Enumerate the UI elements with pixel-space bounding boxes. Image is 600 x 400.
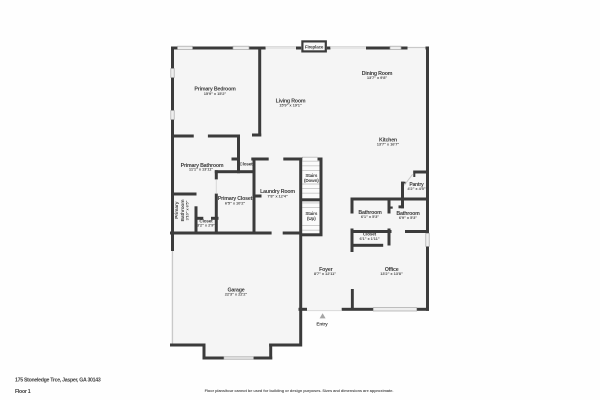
svg-text:Entry: Entry bbox=[316, 322, 328, 327]
svg-text:(Down): (Down) bbox=[304, 178, 319, 183]
svg-text:11'1" x 13'11": 11'1" x 13'11" bbox=[189, 167, 213, 172]
svg-text:13'7" x 16'7": 13'7" x 16'7" bbox=[377, 142, 400, 147]
svg-text:6'1" x 5'3": 6'1" x 5'3" bbox=[361, 214, 379, 219]
svg-text:15'9" x 19'1": 15'9" x 19'1" bbox=[279, 103, 302, 108]
svg-text:6'5" x 10'2": 6'5" x 10'2" bbox=[225, 200, 245, 205]
svg-text:Floor 1: Floor 1 bbox=[15, 389, 31, 395]
svg-text:4'2" x 4'5": 4'2" x 4'5" bbox=[407, 186, 425, 191]
svg-text:Fireplace: Fireplace bbox=[305, 44, 324, 49]
svg-text:13'7" x 9'8": 13'7" x 9'8" bbox=[367, 75, 387, 80]
svg-text:6'9" x 5'3": 6'9" x 5'3" bbox=[399, 215, 417, 220]
svg-text:22'3" x 22'2": 22'3" x 22'2" bbox=[225, 292, 248, 297]
svg-text:Floor plans/tour cannot be use: Floor plans/tour cannot be used for buil… bbox=[205, 388, 394, 393]
svg-text:8'7" x 12'11": 8'7" x 12'11" bbox=[314, 271, 336, 276]
svg-text:Closet: Closet bbox=[239, 161, 253, 166]
svg-text:6'1" x 1'11": 6'1" x 1'11" bbox=[359, 236, 379, 241]
svg-text:13'2" x 13'8": 13'2" x 13'8" bbox=[380, 271, 403, 276]
svg-text:7'8" x 12'4": 7'8" x 12'4" bbox=[267, 193, 287, 198]
svg-text:175 Stoneledge Trce, Jasper, G: 175 Stoneledge Trce, Jasper, GA 30143 bbox=[15, 378, 101, 384]
svg-text:3'10" x 6'5": 3'10" x 6'5" bbox=[185, 200, 190, 220]
svg-text:15'9" x 15'2": 15'9" x 15'2" bbox=[204, 91, 227, 96]
svg-text:Stairs: Stairs bbox=[305, 173, 317, 178]
svg-text:(Up): (Up) bbox=[307, 216, 316, 221]
svg-text:3'2" x 2'9": 3'2" x 2'9" bbox=[197, 223, 215, 228]
svg-text:Primary: Primary bbox=[174, 201, 180, 219]
